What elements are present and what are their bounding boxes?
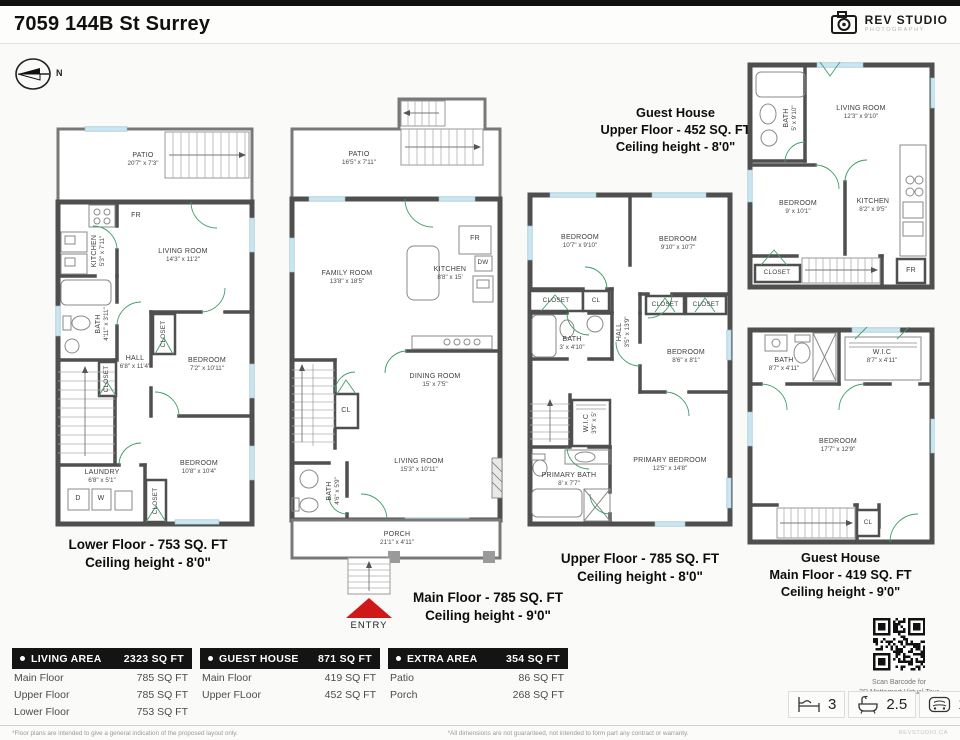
room-label-cl: CL: [864, 519, 873, 527]
qr-caption-line1: Scan Barcode for: [838, 678, 960, 688]
room-label-bedroom2: BEDROOM9'10" x 10'7": [659, 236, 697, 252]
room-label-living: LIVING ROOM12'3" x 9'10": [836, 105, 885, 121]
summary-row: 3 2.5 1: [788, 691, 960, 718]
page-title: 7059 144B St Surrey: [14, 13, 210, 36]
footer-disclaimer-center: *All dimensions are not guaranteed, not …: [448, 730, 689, 737]
room-label-dw: DW: [478, 259, 489, 267]
main-floor-plan: PATIO16'5" x 7'11" FAMILY ROOM13'8" x 18…: [287, 96, 505, 602]
guest-house-upper-svg: [747, 62, 935, 290]
beds-count: 3: [828, 696, 836, 713]
camera-icon: [830, 10, 860, 36]
room-label-bedroom3: BEDROOM8'6" x 8'1": [667, 349, 705, 365]
room-label-bedroom1: BEDROOM7'2" x 10'11": [188, 357, 226, 373]
table-title: LIVING AREA: [31, 653, 124, 665]
garage-summary: 1: [919, 691, 960, 718]
header: 7059 144B St Surrey REV STUDIO PHOTOGRAP…: [0, 6, 960, 44]
bath-icon: [857, 695, 879, 714]
bed-icon: [797, 696, 821, 713]
area-tables: LIVING AREA2323 SQ FT Main Floor785 SQ F…: [12, 648, 568, 720]
table-row: Upper FLoor452 SQ FT: [200, 686, 380, 703]
upper-floor-plan: BEDROOM10'7" x 9'10" BEDROOM9'10" x 10'7…: [527, 192, 735, 544]
table-row: Main Floor419 SQ FT: [200, 669, 380, 686]
footer-disclaimer-left: *Floor plans are intended to give a gene…: [12, 730, 238, 737]
room-label-kitchen: KITCHEN8'8" x 15': [434, 266, 466, 282]
logo-name: REV STUDIO: [865, 13, 948, 27]
guest-house-table: GUEST HOUSE871 SQ FT Main Floor419 SQ FT…: [200, 648, 380, 720]
room-label-closet-hall: CLOSET: [103, 366, 111, 393]
guest-upper-caption: Guest House Upper Floor - 452 SQ. FT Cei…: [583, 105, 768, 156]
bullet-icon: [396, 656, 401, 661]
table-total: 871 SQ FT: [318, 653, 372, 665]
table-total: 2323 SQ FT: [124, 653, 184, 665]
room-label-fr: FR: [470, 235, 480, 243]
stairs: [802, 258, 880, 283]
table-title: EXTRA AREA: [407, 653, 506, 665]
living-area-table: LIVING AREA2323 SQ FT Main Floor785 SQ F…: [12, 648, 192, 720]
room-label-hall: HALL6'8" x 11'4": [120, 355, 151, 371]
footer: *Floor plans are intended to give a gene…: [0, 725, 960, 740]
room-label-bedroom1: BEDROOM10'7" x 9'10": [561, 234, 599, 250]
room-label-fr: FR: [131, 212, 141, 220]
guest-house-upper-plan: BATH5' x 9'10" LIVING ROOM12'3" x 9'10" …: [747, 62, 935, 290]
room-label-patio: PATIO20'7" x 7'3": [127, 152, 158, 168]
room-label-cl: CL: [341, 407, 350, 415]
beds-summary: 3: [788, 691, 845, 718]
footer-brand: REVSTUDIO.CA: [899, 730, 948, 736]
room-label-washer: W: [98, 495, 105, 503]
room-label-dryer: D: [75, 495, 80, 503]
table-row: Patio86 SQ FT: [388, 669, 568, 686]
table-row: Lower Floor753 SQ FT: [12, 703, 192, 720]
room-label-bedroom: BEDROOM9' x 10'1": [779, 200, 817, 216]
room-label-hall: HALL3'5" x 13'9": [616, 316, 632, 347]
lower-floor-plan: PATIO20'7" x 7'3" FR KITCHEN5'3" x 7'11"…: [55, 126, 255, 528]
upper-floor-svg: [527, 192, 735, 544]
room-label-primary-bath: PRIMARY BATH8' x 7'7": [542, 472, 597, 488]
logo-sub: PHOTOGRAPHY: [865, 27, 948, 33]
rev-studio-logo: REV STUDIO PHOTOGRAPHY: [830, 10, 948, 36]
room-label-bedroom: BEDROOM17'7" x 12'9": [819, 438, 857, 454]
table-row: Porch268 SQ FT: [388, 686, 568, 703]
guest-main-caption: Guest House Main Floor - 419 SQ. FT Ceil…: [748, 550, 933, 601]
baths-count: 2.5: [886, 696, 907, 713]
lower-floor-svg: [55, 126, 255, 528]
room-label-kitchen: KITCHEN8'2" x 9'5": [857, 198, 889, 214]
main-floor-svg: [287, 96, 505, 602]
car-icon: [928, 696, 951, 713]
room-label-closet1: CLOSET: [543, 297, 570, 305]
room-label-fr: FR: [906, 267, 916, 275]
compass-rose-icon: [14, 55, 54, 95]
room-label-laundry: LAUNDRY6'8" x 5'1": [84, 469, 119, 485]
room-label-closet2: CLOSET: [652, 301, 679, 309]
baths-summary: 2.5: [848, 691, 916, 718]
extra-area-table: EXTRA AREA354 SQ FT Patio86 SQ FT Porch2…: [388, 648, 568, 720]
room-label-primary-bedroom: PRIMARY BEDROOM12'5" x 14'8": [633, 457, 707, 473]
table-total: 354 SQ FT: [506, 653, 560, 665]
room-label-closet: CLOSET: [764, 269, 791, 277]
room-label-bath: BATH4'6" x 5'9": [326, 477, 342, 505]
patio-stairs: [165, 132, 249, 178]
room-label-bath: BATH4'11" x 3'11": [95, 307, 111, 341]
room-label-patio: PATIO16'5" x 7'11": [342, 151, 376, 167]
lower-floor-caption: Lower Floor - 753 SQ. FT Ceiling height …: [38, 536, 258, 572]
bullet-icon: [20, 656, 25, 661]
room-label-closet3: CLOSET: [693, 301, 720, 309]
room-label-closet-bedroom2: CLOSET: [152, 488, 160, 515]
bullet-icon: [208, 656, 213, 661]
room-label-bath: BATH8'7" x 4'11": [769, 357, 800, 373]
qr-code: [873, 618, 926, 676]
compass-north-label: N: [56, 68, 63, 78]
upper-floor-caption: Upper Floor - 785 SQ. FT Ceiling height …: [535, 550, 745, 586]
guest-house-main-plan: BATH8'7" x 4'11" W.I.C8'7" x 4'11" BEDRO…: [747, 327, 935, 545]
room-label-living: LIVING ROOM15'3" x 10'11": [394, 458, 443, 474]
fireplace: [492, 458, 502, 498]
room-label-wic: W.I.C8'7" x 4'11": [867, 349, 898, 365]
room-label-kitchen: KITCHEN5'3" x 7'11": [91, 235, 107, 267]
room-label-bath: BATH3' x 4'10": [559, 336, 584, 352]
table-title: GUEST HOUSE: [219, 653, 318, 665]
room-label-bedroom2: BEDROOM10'8" x 10'4": [180, 460, 218, 476]
room-label-family: FAMILY ROOM13'8" x 18'5": [322, 270, 373, 286]
room-label-closet-bedroom1: CLOSET: [160, 321, 168, 348]
room-label-living: LIVING ROOM14'3" x 11'2": [158, 248, 207, 264]
main-floor-caption: Main Floor - 785 SQ. FT Ceiling height -…: [382, 589, 594, 625]
room-label-wic: W.I.C3'9" x 5': [583, 412, 599, 434]
stairs: [777, 508, 855, 538]
table-row: Upper Floor785 SQ FT: [12, 686, 192, 703]
room-label-cl: CL: [592, 297, 601, 305]
room-label-porch: PORCH21'1" x 4'11": [380, 531, 414, 547]
qr-block: Scan Barcode for 3D Matterport Virtual T…: [838, 618, 960, 698]
compass-icon: N: [14, 55, 72, 95]
table-row: Main Floor785 SQ FT: [12, 669, 192, 686]
room-label-bath: BATH5' x 9'10": [783, 105, 799, 130]
room-label-dining: DINING ROOM15' x 7'5": [410, 373, 461, 389]
